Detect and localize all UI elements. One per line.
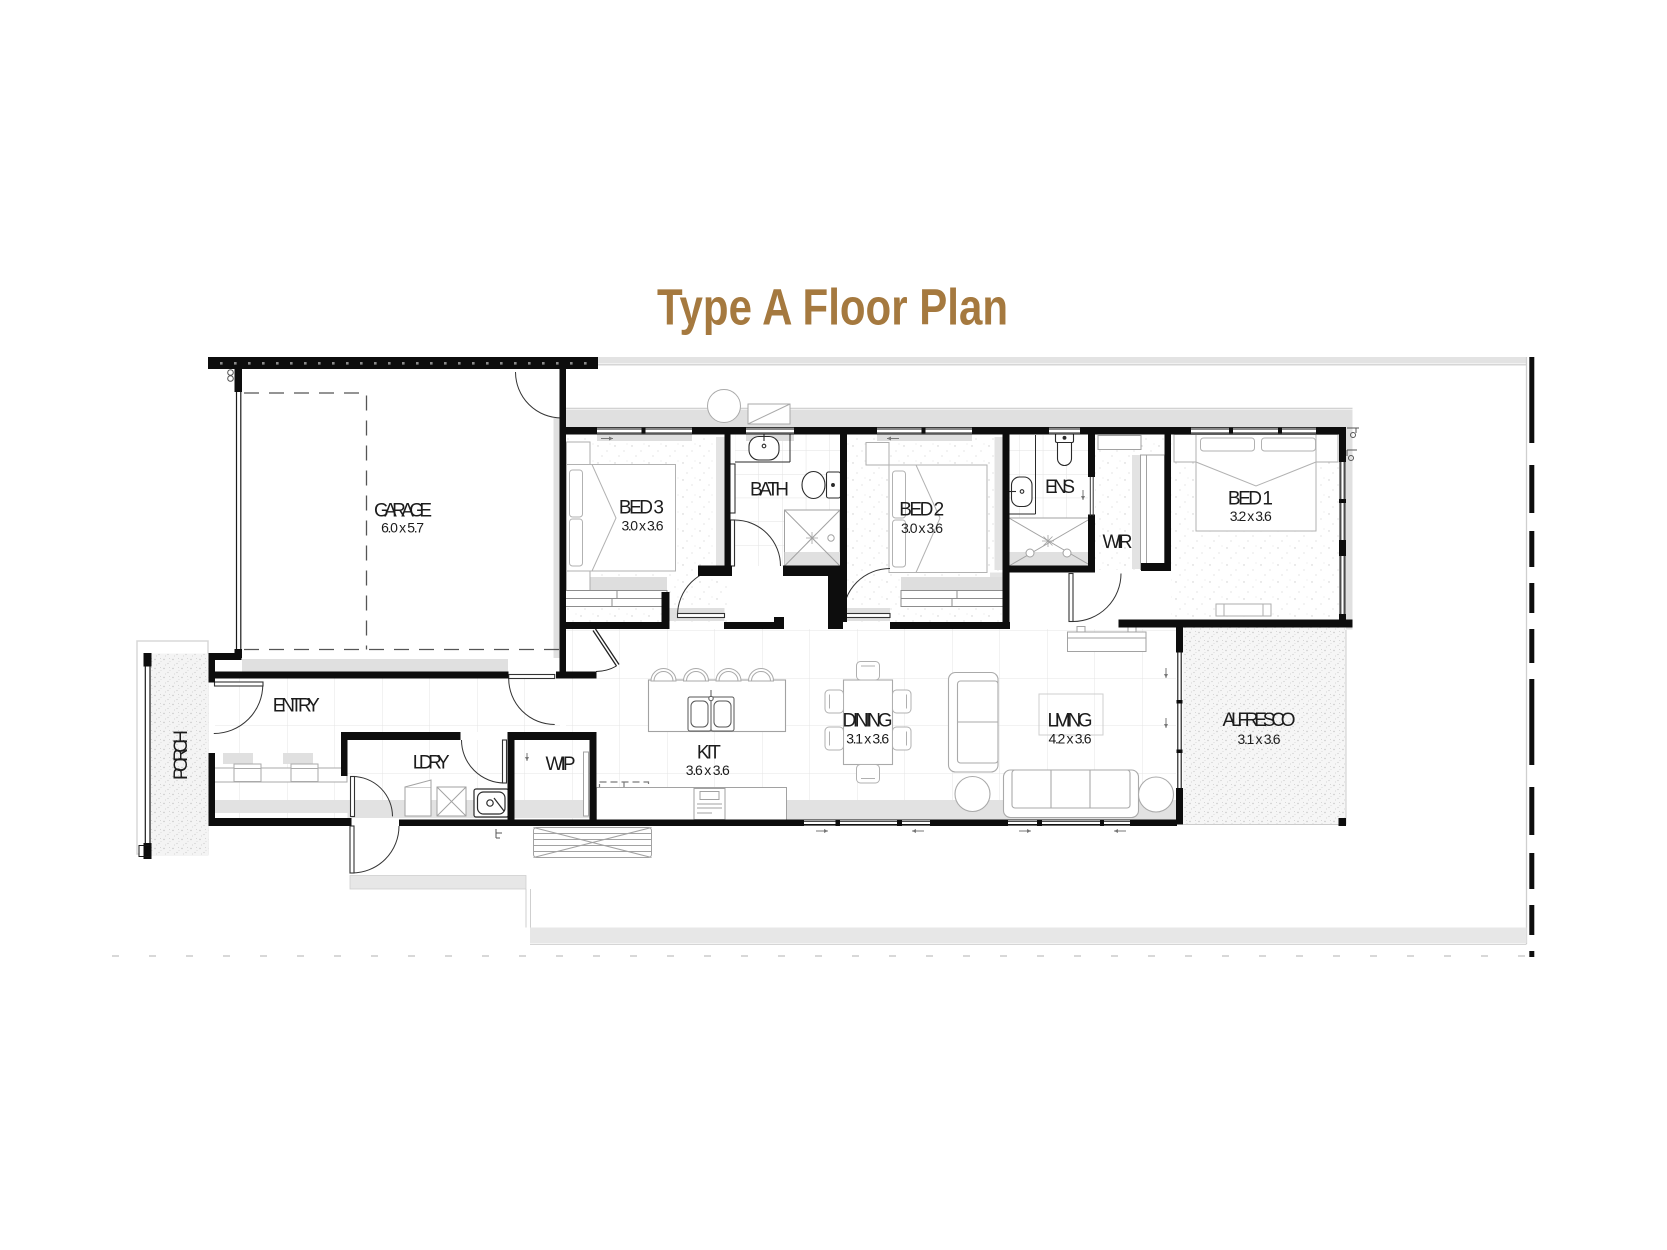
svg-text:3.1 x 3.6: 3.1 x 3.6 xyxy=(1238,731,1281,747)
svg-text:PORCH: PORCH xyxy=(171,730,192,780)
svg-text:BED 2: BED 2 xyxy=(899,499,944,520)
svg-text:WIR: WIR xyxy=(1103,532,1133,553)
svg-text:BED 1: BED 1 xyxy=(1228,488,1273,509)
svg-text:LDRY: LDRY xyxy=(413,752,450,773)
svg-text:3.0 x 3.6: 3.0 x 3.6 xyxy=(622,518,664,534)
svg-text:4.2 x 3.6: 4.2 x 3.6 xyxy=(1049,730,1092,746)
svg-text:BATH: BATH xyxy=(750,480,789,501)
svg-text:ENS: ENS xyxy=(1045,477,1075,498)
svg-text:3.6 x 3.6: 3.6 x 3.6 xyxy=(686,762,730,778)
svg-text:3.0 x 3.6: 3.0 x 3.6 xyxy=(901,520,943,536)
svg-text:LIVING: LIVING xyxy=(1048,710,1093,731)
svg-text:Type A Floor Plan: Type A Floor Plan xyxy=(657,279,1008,336)
svg-text:3.2 x 3.6: 3.2 x 3.6 xyxy=(1230,508,1272,524)
svg-text:3.1 x 3.6: 3.1 x 3.6 xyxy=(846,730,889,746)
svg-text:KIT: KIT xyxy=(697,742,721,763)
svg-text:ENTRY: ENTRY xyxy=(273,696,320,717)
svg-text:6.0 x 5.7: 6.0 x 5.7 xyxy=(381,520,424,536)
svg-text:WIP: WIP xyxy=(546,754,576,775)
svg-text:BED 3: BED 3 xyxy=(619,498,664,519)
svg-text:ALFRESCO: ALFRESCO xyxy=(1223,710,1296,731)
svg-text:DINING: DINING xyxy=(843,710,893,731)
svg-text:GARAGE: GARAGE xyxy=(374,501,432,522)
